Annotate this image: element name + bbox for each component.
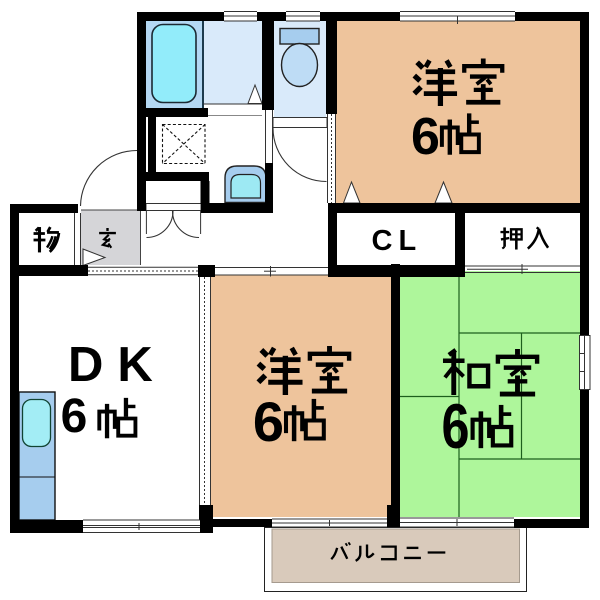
svg-text:6: 6 [411,108,440,166]
svg-text:6: 6 [441,392,469,463]
svg-text:CL: CL [372,225,423,257]
svg-text:DK: DK [68,338,167,392]
svg-text:6: 6 [61,390,88,443]
svg-text:6: 6 [253,390,284,453]
